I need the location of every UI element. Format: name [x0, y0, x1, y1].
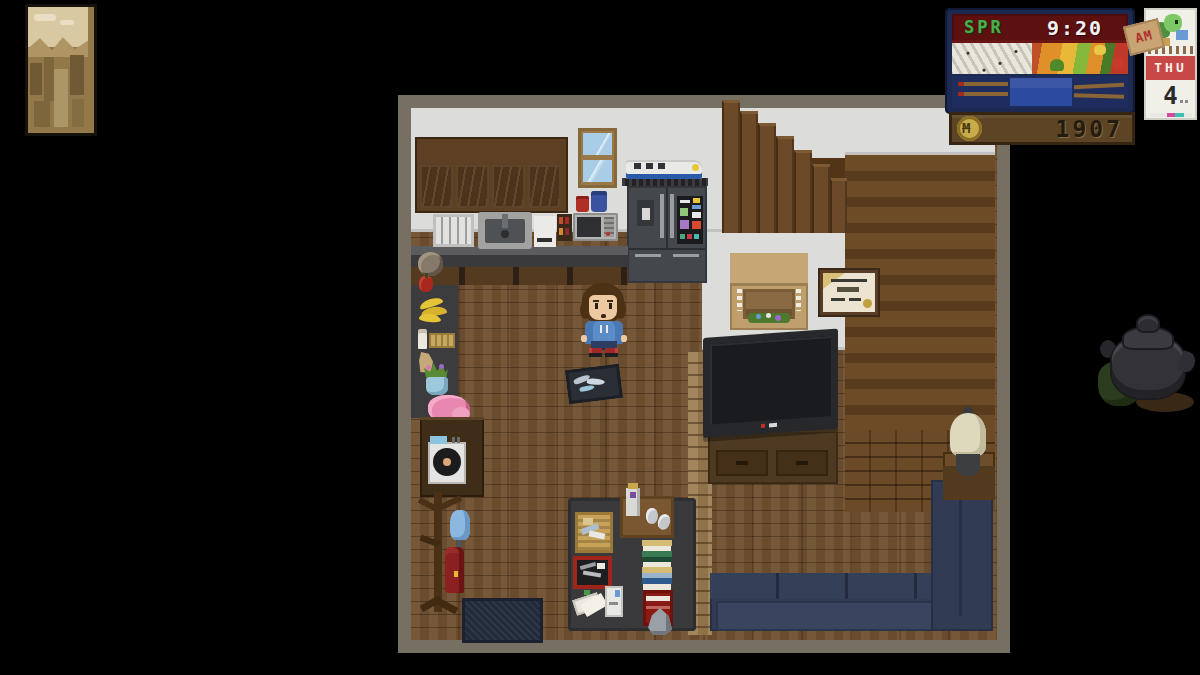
- box-dot: [615, 590, 620, 597]
- character-eye: [609, 303, 612, 309]
- character-shoe: [605, 348, 618, 357]
- money-amount: 1907: [1056, 116, 1123, 142]
- glass-cup[interactable]: [646, 508, 658, 524]
- hud-clock-panel: SPR 9:20: [945, 8, 1135, 114]
- sepia-painting[interactable]: [25, 4, 97, 136]
- painting-building: [30, 63, 42, 95]
- season-label: SPR: [964, 17, 1004, 37]
- umbrella[interactable]: [450, 510, 470, 552]
- magnet: [692, 212, 701, 218]
- magazine-band: [646, 606, 670, 609]
- tomato-bit: [1112, 57, 1124, 69]
- turtle-eye: [1175, 20, 1178, 24]
- tv-standby-light: [761, 424, 765, 428]
- backsplash-towel: [534, 216, 556, 247]
- staircase-steps[interactable]: [722, 100, 845, 230]
- freezer-handle[interactable]: [673, 254, 699, 257]
- certificate-text: [831, 279, 867, 282]
- magazine-band: [646, 596, 670, 601]
- flower: [775, 315, 781, 321]
- train-window: [658, 163, 665, 169]
- teapot-lid-knob: [1138, 316, 1158, 331]
- calendar-color-strip: [1150, 113, 1192, 117]
- hoodie-string: [600, 325, 602, 333]
- microwave[interactable]: [573, 213, 618, 241]
- corn-bit: [1094, 45, 1106, 55]
- fireplace-mantel[interactable]: [730, 253, 808, 330]
- lamp-shade: [950, 413, 986, 456]
- flower-bed: [748, 313, 790, 323]
- stair-step: [830, 178, 847, 233]
- plant-blossom: [426, 365, 431, 370]
- magnet: [692, 205, 701, 209]
- vinyl-record: [433, 448, 461, 476]
- microwave-window: [577, 217, 601, 237]
- stair-step: [776, 136, 794, 233]
- apple[interactable]: [419, 276, 433, 292]
- painting-building: [72, 99, 84, 127]
- red-coat[interactable]: [445, 547, 464, 593]
- spice-bottle: [565, 228, 569, 235]
- toolbox-label: [597, 563, 605, 569]
- spice-bottle: [559, 217, 563, 224]
- counter-front: [411, 255, 628, 267]
- coffee-table[interactable]: [568, 498, 696, 631]
- couch-arm-line: [959, 486, 962, 616]
- tray-fish: [579, 384, 595, 392]
- window[interactable]: [578, 128, 617, 188]
- chopstick: [958, 82, 1008, 86]
- wreath[interactable]: [418, 252, 443, 276]
- tool: [583, 570, 601, 577]
- ice-dispenser[interactable]: [637, 200, 654, 226]
- papers[interactable]: [574, 590, 608, 620]
- paper-mark: [584, 590, 590, 595]
- game-screen: SPR 9:20 M 1907: [0, 0, 1200, 675]
- spice-bottle: [559, 228, 563, 235]
- sink[interactable]: [478, 212, 532, 249]
- towel-bar: [537, 238, 552, 242]
- plant-blossom: [439, 364, 444, 369]
- magnet: [694, 234, 699, 239]
- magnet: [687, 234, 692, 239]
- tv-screen: [710, 336, 831, 424]
- box-line: [609, 602, 618, 605]
- spice-rack[interactable]: [557, 214, 572, 241]
- cabinet-door[interactable]: [492, 165, 525, 208]
- magnet: [680, 208, 688, 216]
- character-hand: [621, 335, 627, 342]
- painting-building: [70, 55, 84, 95]
- stair-step: [758, 123, 776, 233]
- chopstick: [1074, 93, 1124, 99]
- dispenser-cup: [642, 208, 650, 220]
- flower: [766, 313, 771, 318]
- lace-trim: [796, 289, 801, 311]
- tool: [580, 562, 596, 570]
- flower: [756, 314, 761, 319]
- table-lamp[interactable]: [950, 407, 986, 477]
- painting-path: [54, 69, 68, 127]
- player-knob[interactable]: [452, 437, 455, 443]
- magnet: [692, 221, 701, 229]
- toolbox[interactable]: [573, 556, 612, 589]
- fridge-split: [666, 188, 668, 248]
- stair-step: [812, 164, 830, 233]
- stair-step: [722, 100, 740, 233]
- magnet: [680, 220, 689, 229]
- character-eye: [595, 303, 598, 309]
- bento-tray-bar: [952, 76, 1128, 108]
- hud-money-bar: M 1907: [949, 112, 1135, 145]
- train-body: [626, 160, 702, 179]
- tv-stand-drawer[interactable]: [776, 450, 828, 476]
- character-hand: [581, 335, 587, 342]
- mini-crate[interactable]: [429, 333, 455, 348]
- book-stack[interactable]: [642, 540, 672, 590]
- painting-building: [44, 57, 54, 101]
- tray-fish: [587, 378, 605, 385]
- spice-bottle: [565, 217, 569, 224]
- freezer-handle[interactable]: [635, 254, 661, 257]
- stair-step: [740, 111, 758, 233]
- day-dots: [1180, 100, 1190, 103]
- microwave-button[interactable]: [606, 232, 610, 236]
- drawer-handle: [736, 461, 748, 465]
- drawer-handle: [796, 461, 808, 465]
- certificate-seal: [863, 299, 872, 308]
- glass-cup[interactable]: [656, 513, 672, 532]
- certificate-paper: [823, 273, 875, 312]
- painting-building: [34, 101, 50, 127]
- vinyl-label: [443, 458, 451, 466]
- certificate-text: [831, 298, 845, 301]
- framed-certificate[interactable]: [818, 268, 880, 317]
- umbrella-canopy: [450, 510, 470, 540]
- lace-trim: [737, 289, 742, 311]
- floor-tray-with-fish[interactable]: [565, 364, 623, 404]
- fridge-magnet-board[interactable]: [677, 196, 703, 244]
- train-window: [646, 163, 653, 169]
- weekday-label: THU: [1154, 60, 1186, 75]
- fish-basket[interactable]: [575, 512, 613, 553]
- tray-center-panel: [1010, 78, 1072, 106]
- sectional-couch-right[interactable]: [931, 480, 993, 631]
- kitchen-cabinets[interactable]: [415, 137, 568, 213]
- stair-step: [794, 150, 812, 233]
- television[interactable]: [703, 329, 838, 438]
- broccoli-bit: [1050, 59, 1064, 71]
- tv-stand[interactable]: [708, 428, 838, 484]
- character-curl: [616, 299, 626, 319]
- day-number: 4: [1163, 82, 1177, 110]
- painting-cloud: [34, 14, 56, 21]
- fridge-handle[interactable]: [660, 194, 664, 238]
- currency-symbol: M: [962, 120, 970, 136]
- door-mat[interactable]: [462, 598, 543, 643]
- cabinet-door[interactable]: [456, 165, 489, 208]
- basket-item: [583, 518, 593, 525]
- fridge-handle[interactable]: [670, 194, 674, 238]
- turtle-item: [1176, 30, 1188, 40]
- character-brow: [593, 300, 599, 302]
- cabinet-door[interactable]: [420, 165, 453, 208]
- character-shoe: [589, 348, 602, 357]
- bento-rice-photo: [952, 40, 1032, 74]
- dark-teapot[interactable]: [1098, 314, 1198, 420]
- player-screen: [430, 436, 447, 444]
- chopstick: [1074, 83, 1124, 90]
- meridiem-label: AM: [1133, 27, 1154, 46]
- vase-plant[interactable]: [422, 363, 450, 397]
- jar-lid: [628, 483, 638, 489]
- calendar-day-area: 4: [1146, 80, 1195, 112]
- toy-train[interactable]: [622, 156, 708, 186]
- jar-content: [630, 492, 636, 498]
- clock-screen: SPR 9:20: [952, 14, 1128, 74]
- white-box[interactable]: [605, 586, 623, 617]
- window-pane: [583, 160, 612, 182]
- magnet: [693, 198, 700, 203]
- freezer-split: [629, 248, 705, 250]
- magnet: [680, 234, 685, 239]
- hoodie-string: [606, 325, 608, 333]
- player-character[interactable]: [582, 283, 626, 357]
- time-display: 9:20: [1047, 16, 1103, 40]
- tv-logo-dot: [769, 423, 777, 428]
- magnet: [680, 200, 690, 203]
- glass-jar[interactable]: [626, 488, 640, 516]
- sink-drain: [501, 230, 509, 238]
- farmhouse-room: [398, 95, 1010, 653]
- red-mug[interactable]: [576, 196, 589, 212]
- window-pane: [583, 133, 612, 155]
- chopstick: [958, 92, 1008, 96]
- milk-bottle[interactable]: [418, 329, 427, 349]
- record-player[interactable]: [428, 442, 466, 484]
- dish-rack[interactable]: [433, 214, 474, 247]
- player-knob[interactable]: [457, 437, 460, 443]
- blue-vase: [426, 377, 448, 395]
- cabinet-door[interactable]: [528, 165, 561, 208]
- character-brow: [607, 300, 613, 302]
- mantel-lintel: [730, 253, 808, 286]
- apple-stem: [425, 273, 428, 278]
- character-mouth: [601, 314, 606, 318]
- train-light: [692, 164, 699, 171]
- tv-stand-drawer[interactable]: [716, 450, 768, 476]
- certificate-text: [849, 298, 861, 301]
- refrigerator[interactable]: [627, 186, 707, 283]
- certificate-text: [837, 287, 859, 292]
- lamp-base: [956, 454, 980, 476]
- bananas[interactable]: [417, 295, 449, 323]
- coat-button: [454, 571, 458, 577]
- teapot-shoulder: [1124, 328, 1172, 348]
- sink-faucet[interactable]: [502, 214, 508, 228]
- basket-fish: [589, 530, 606, 539]
- wooden-tray[interactable]: [620, 496, 674, 538]
- train-track: [622, 178, 708, 186]
- bento-veggie-photo: [1032, 40, 1128, 74]
- train-window: [634, 163, 641, 169]
- painting-cloud: [60, 20, 74, 25]
- coin-icon: M: [957, 116, 982, 141]
- calendar-weekday-band: THU: [1146, 56, 1195, 80]
- blue-mug[interactable]: [591, 191, 607, 212]
